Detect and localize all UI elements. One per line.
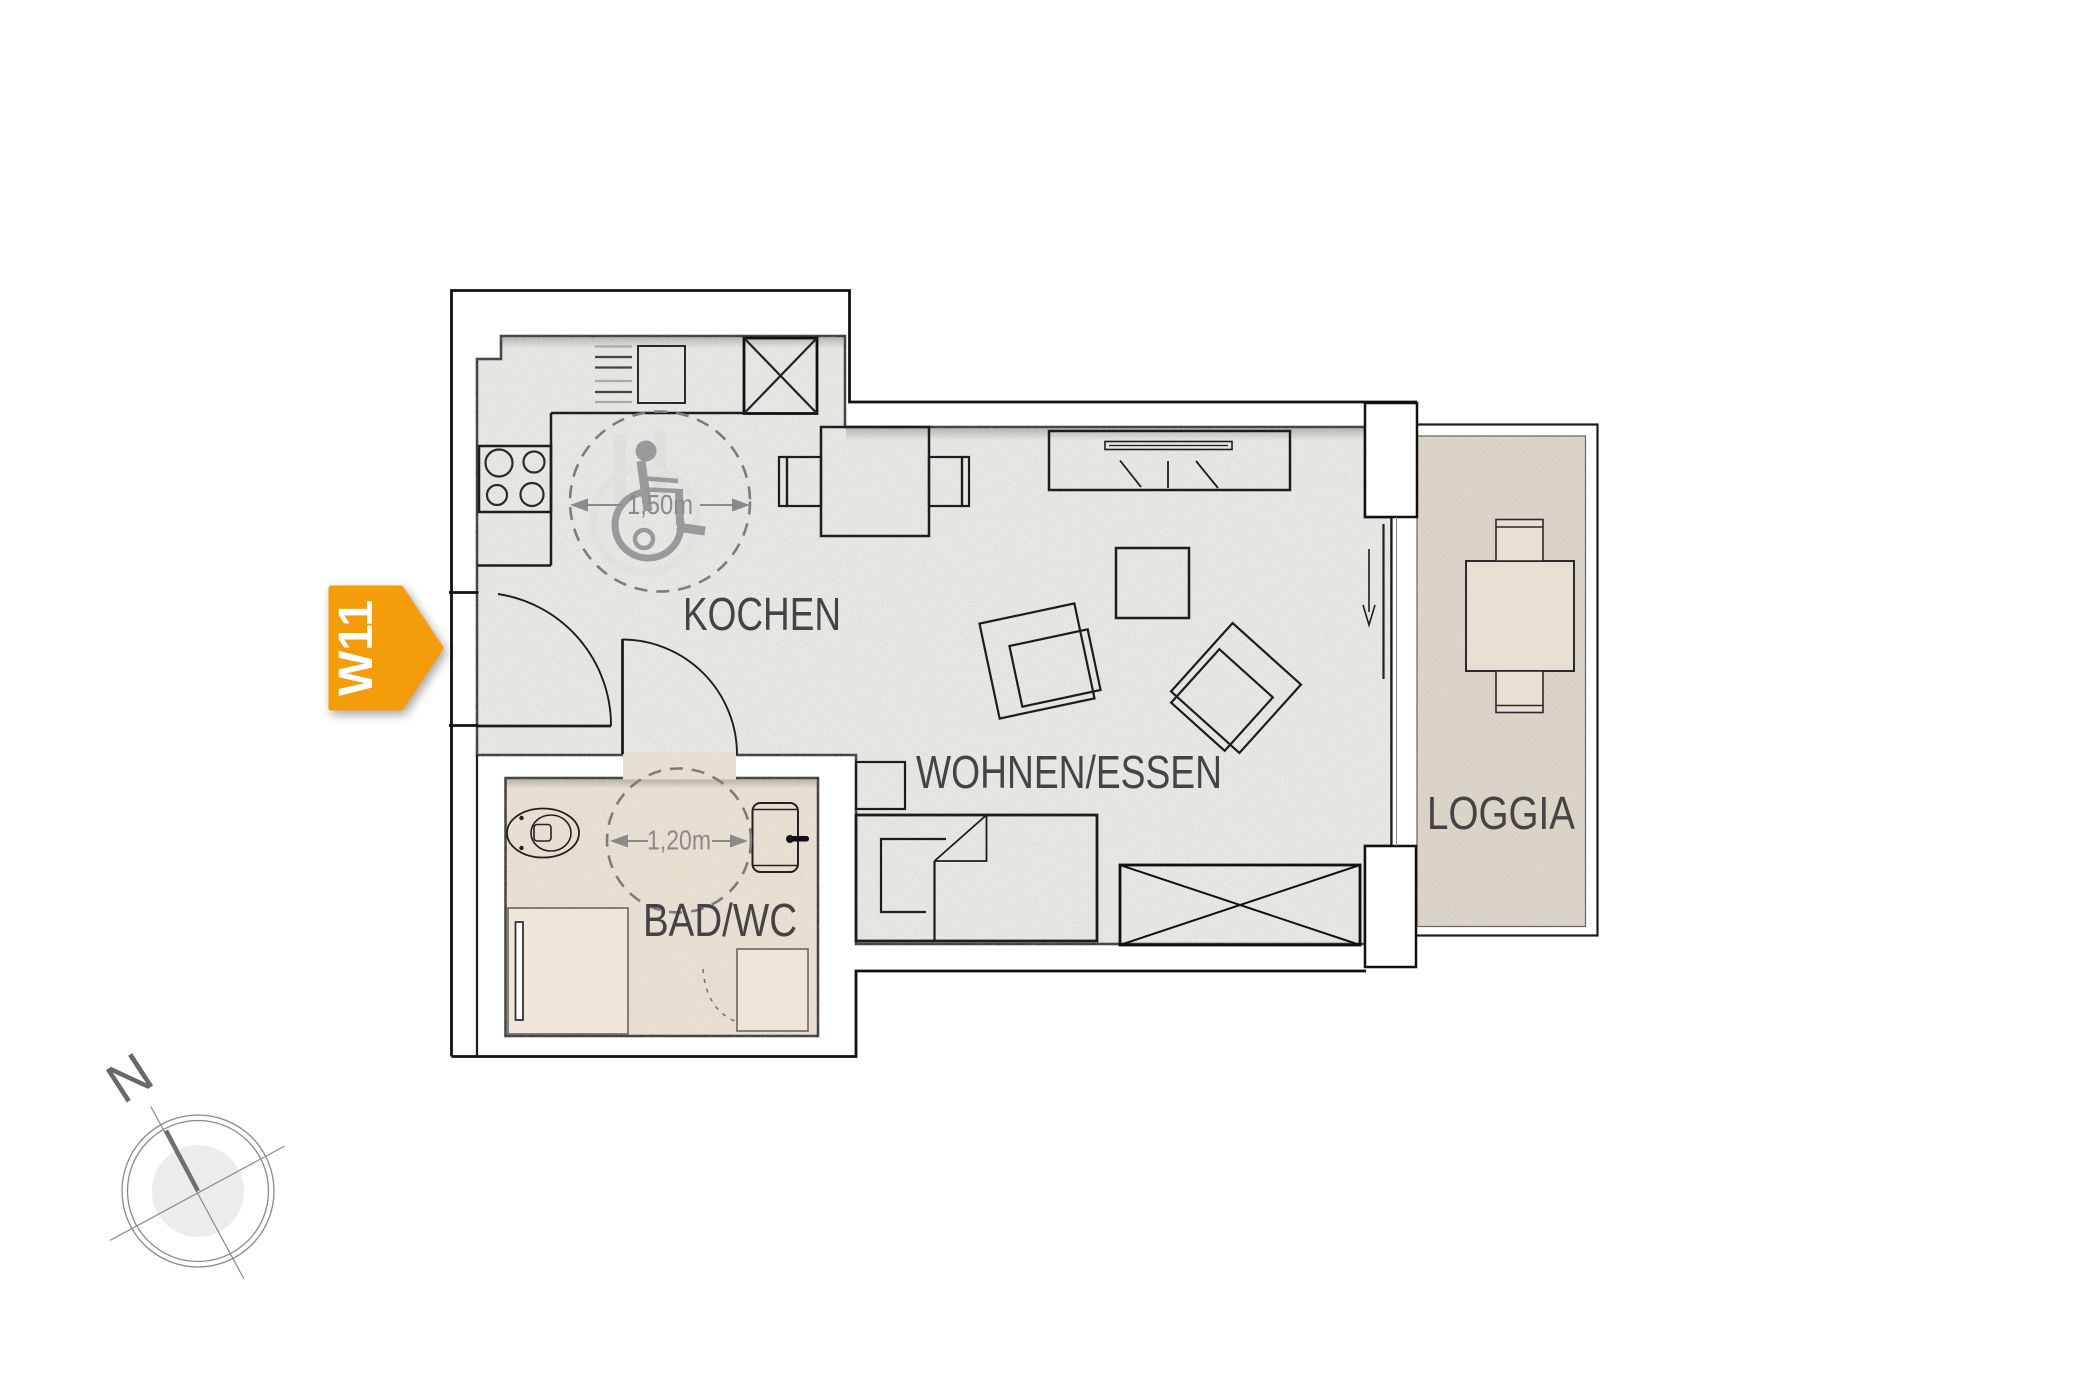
svg-text:BAD/WC: BAD/WC xyxy=(643,894,797,946)
svg-text:W11: W11 xyxy=(330,600,383,696)
svg-text:N: N xyxy=(95,1040,163,1115)
svg-text:WOHNEN/ESSEN: WOHNEN/ESSEN xyxy=(916,746,1222,798)
svg-text:1,50m: 1,50m xyxy=(627,489,693,520)
svg-text:1,20m: 1,20m xyxy=(647,825,711,856)
svg-text:KOCHEN: KOCHEN xyxy=(683,588,841,640)
svg-text:LOGGIA: LOGGIA xyxy=(1427,787,1575,839)
